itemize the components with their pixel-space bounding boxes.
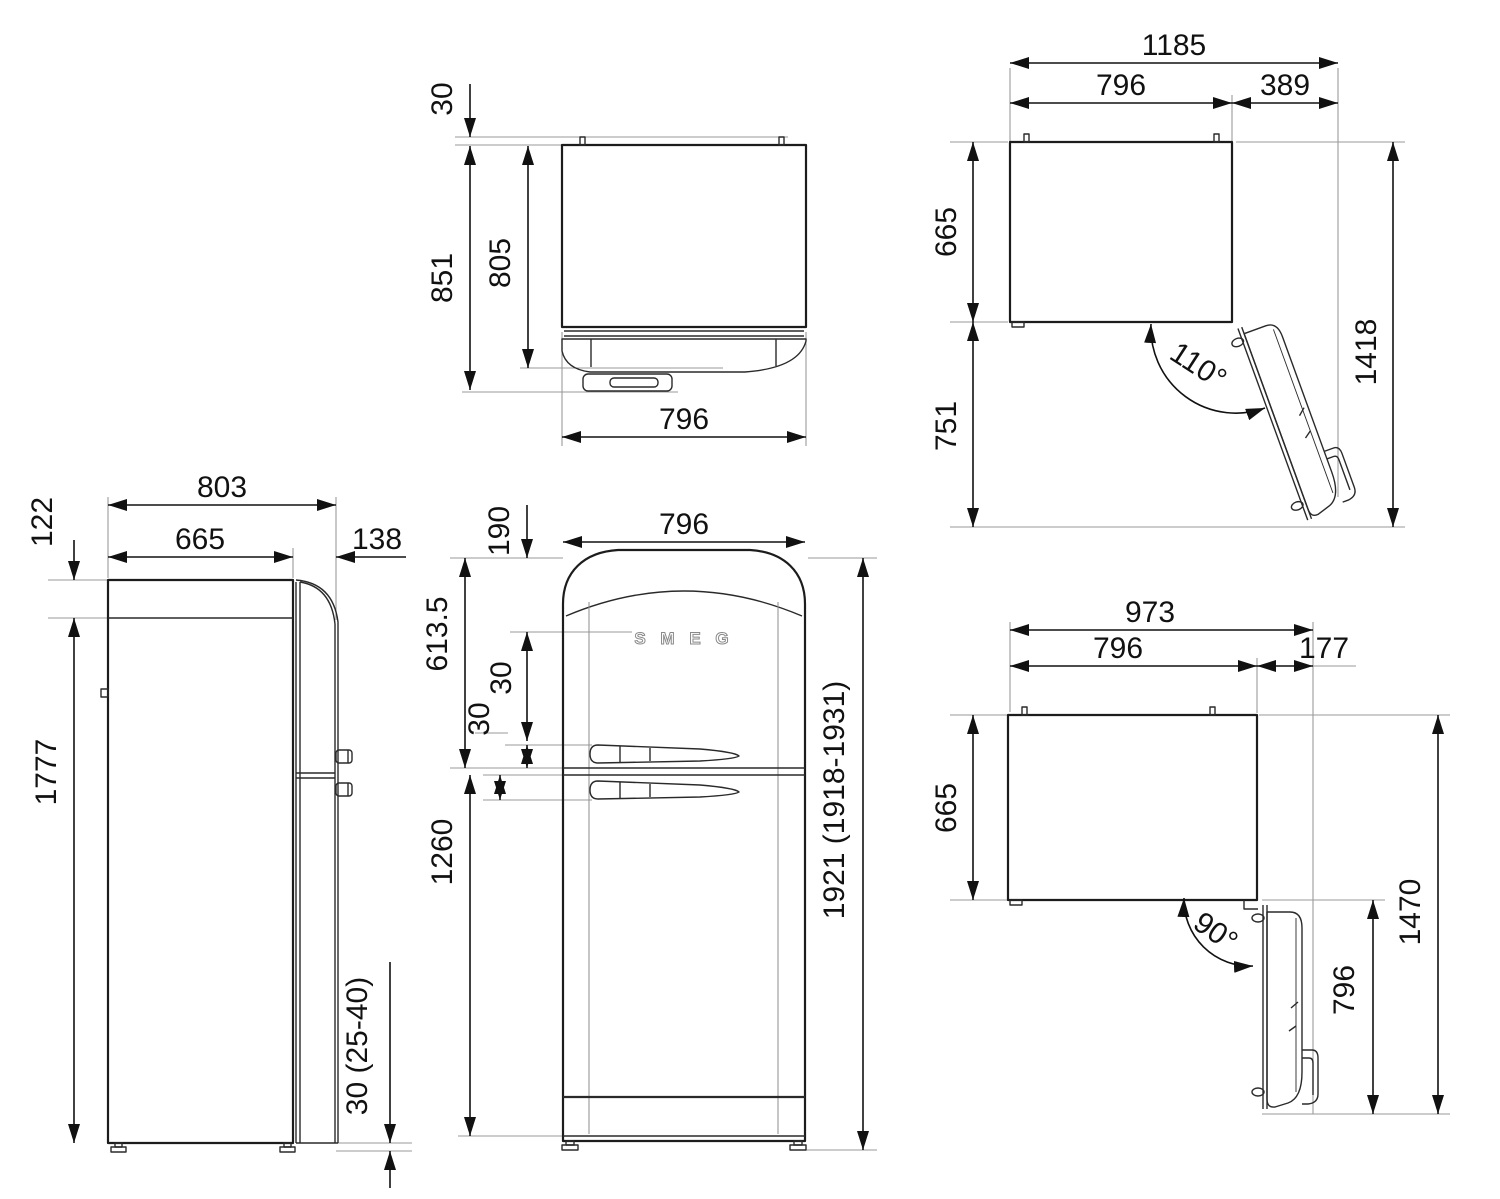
dim-front-total-height: 1921 (1918-1931) [818, 681, 851, 920]
dim-110-door-extent: 389 [1260, 69, 1310, 102]
dim-top-rear-clearance: 30 [426, 82, 459, 115]
dim-side-door-thickness: 138 [352, 523, 402, 556]
dim-top-width: 796 [659, 403, 709, 436]
dim-side-body-height: 1777 [30, 739, 63, 806]
dim-front-lower-handle-offset: 30 [463, 702, 496, 735]
dim-side-body-depth: 665 [175, 523, 225, 556]
dim-110-door-projection: 751 [930, 401, 963, 451]
dim-top-depth-851: 851 [426, 253, 459, 303]
dim-90-body-depth: 665 [930, 783, 963, 833]
dim-110-body-depth: 665 [930, 207, 963, 257]
dim-front-lower-door: 1260 [426, 819, 459, 886]
dim-110-total-width: 1185 [1142, 29, 1207, 62]
dim-top-depth-805: 805 [484, 238, 517, 288]
smeg-logo: S M E G [634, 629, 733, 648]
dim-side-top-section: 122 [26, 497, 59, 547]
dim-90-handle-projection: 177 [1299, 632, 1349, 665]
dim-front-upper-handle-offset: 30 [485, 661, 518, 694]
dim-90-total-depth: 1470 [1394, 879, 1427, 946]
dim-side-total-depth: 803 [197, 471, 247, 504]
dim-side-floor-gap: 30 (25-40) [341, 977, 374, 1115]
dim-front-upper-door: 613.5 [421, 596, 454, 671]
dim-110-body-width: 796 [1096, 69, 1146, 102]
dim-90-door-width: 796 [1328, 965, 1361, 1015]
fridge-dimension-drawing: 30 851 805 796 [0, 0, 1500, 1199]
installation-drawing-page: 30 851 805 796 [0, 0, 1500, 1199]
dim-90-total-width: 973 [1125, 596, 1175, 629]
dim-90-body-width: 796 [1093, 632, 1143, 665]
dim-front-width: 796 [659, 508, 709, 541]
dim-front-logo-drop: 190 [483, 506, 516, 556]
dim-110-total-depth: 1418 [1350, 319, 1383, 386]
